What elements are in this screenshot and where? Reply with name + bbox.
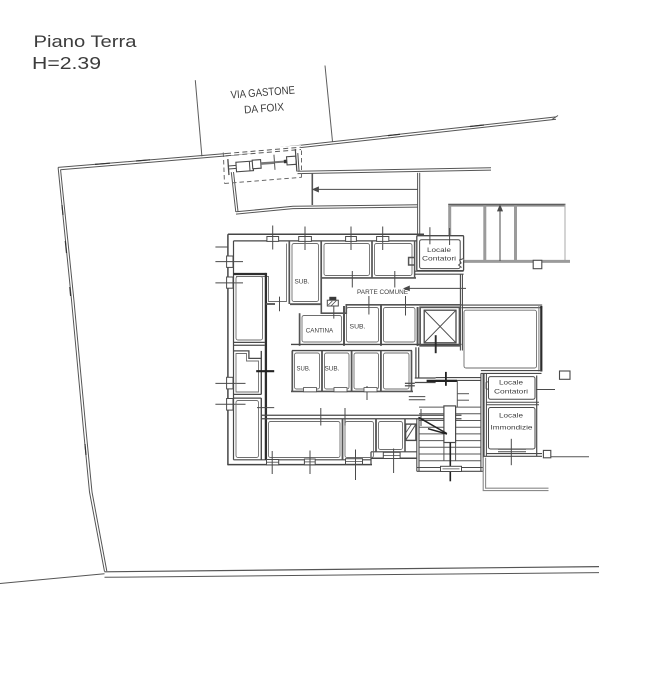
svg-text:SUB.: SUB. (350, 324, 366, 331)
svg-text:Locale: Locale (427, 247, 451, 254)
svg-text:SUB.: SUB. (295, 279, 310, 286)
svg-text:SUB.: SUB. (297, 365, 311, 372)
svg-text:VIA GASTONE: VIA GASTONE (230, 84, 295, 101)
svg-text:PARTE COMUNE: PARTE COMUNE (357, 289, 408, 296)
svg-text:CANTINA: CANTINA (306, 328, 334, 335)
svg-text:Contatori: Contatori (422, 256, 457, 263)
svg-text:Immondizie: Immondizie (491, 424, 533, 431)
svg-text:Contatori: Contatori (494, 388, 529, 395)
svg-text:Piano Terra: Piano Terra (34, 32, 138, 51)
svg-text:Locale: Locale (499, 380, 523, 387)
svg-text:Locale: Locale (499, 412, 523, 419)
svg-text:H=2.39: H=2.39 (32, 53, 101, 73)
svg-text:DA FOIX: DA FOIX (244, 101, 285, 116)
svg-text:SUB.: SUB. (325, 365, 340, 372)
